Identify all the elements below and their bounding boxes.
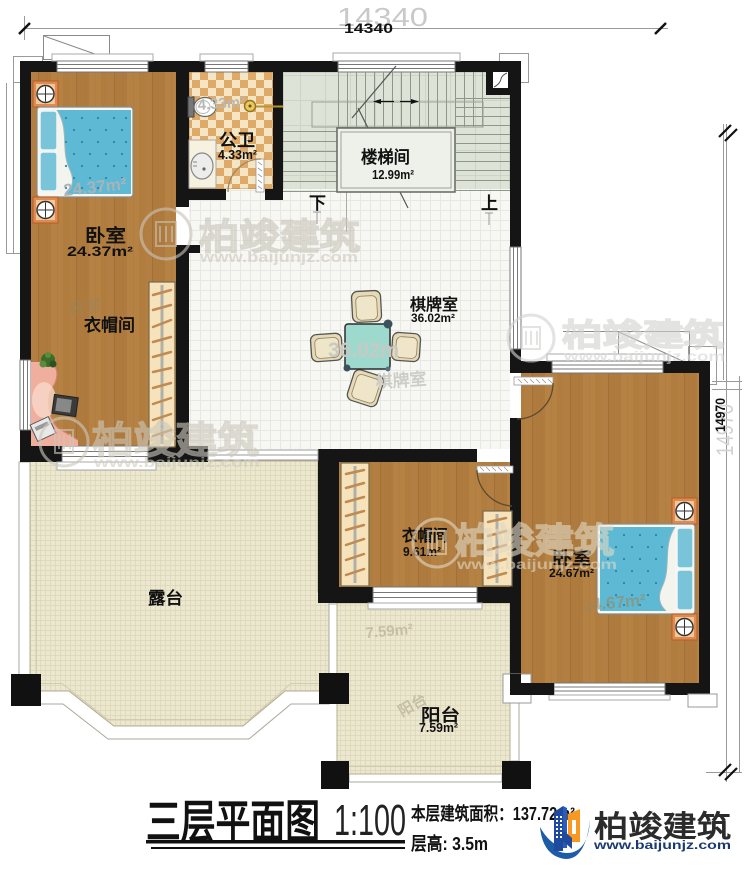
- svg-text:层高: 3.5m: 层高: 3.5m: [411, 833, 488, 854]
- svg-text:36.02m²: 36.02m²: [411, 311, 455, 325]
- svg-text:14340: 14340: [344, 20, 393, 36]
- svg-text:7.59m²: 7.59m²: [419, 721, 458, 735]
- svg-text:棋牌室: 棋牌室: [375, 368, 427, 392]
- svg-text:12.99m²: 12.99m²: [372, 167, 415, 182]
- svg-text:4.33m²: 4.33m²: [218, 148, 257, 162]
- svg-text:24.37m²: 24.37m²: [67, 244, 134, 259]
- svg-text:衣帽间: 衣帽间: [84, 315, 135, 335]
- svg-text:本层建筑面积：137.72m²: 本层建筑面积：137.72m²: [411, 803, 575, 824]
- svg-text:楼梯间: 楼梯间: [361, 147, 410, 167]
- svg-text:www.baijunjz.com: www.baijunjz.com: [593, 838, 731, 852]
- svg-text:露台: 露台: [148, 588, 183, 608]
- svg-text:36.02m: 36.02m: [328, 339, 399, 362]
- svg-text:卧室: 卧室: [85, 225, 126, 246]
- svg-text:www.baijunjz.com: www.baijunjz.com: [93, 454, 260, 470]
- svg-text:14970: 14970: [712, 398, 728, 432]
- svg-text:衣帽间: 衣帽间: [402, 526, 448, 545]
- svg-text:1:100: 1:100: [334, 796, 406, 845]
- svg-text:9.61m²: 9.61m²: [403, 545, 441, 559]
- svg-text:www.baijunjz.com: www.baijunjz.com: [199, 249, 358, 266]
- svg-text:下: 下: [309, 194, 326, 213]
- svg-text:4.33m²: 4.33m²: [197, 94, 246, 114]
- svg-text:www.baijunjz.com: www.baijunjz.com: [563, 348, 725, 364]
- svg-text:柏竣建筑: 柏竣建筑: [455, 521, 614, 561]
- svg-text:www.baijunjz.com: www.baijunjz.com: [456, 556, 617, 572]
- svg-text:上: 上: [481, 194, 498, 213]
